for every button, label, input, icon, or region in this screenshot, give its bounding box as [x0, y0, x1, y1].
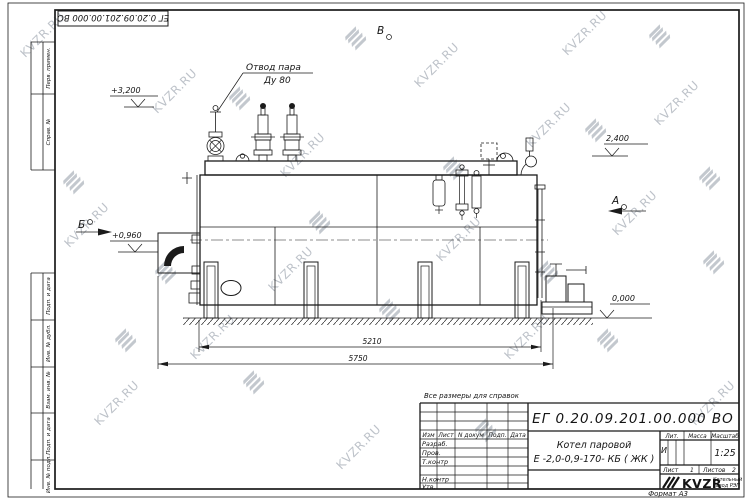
margin-label-sprav-no: Справ. №: [46, 118, 52, 145]
elevation-3200: +3,200: [111, 86, 141, 95]
col-data: Дата: [509, 432, 526, 439]
phantom-fitting: [481, 143, 497, 175]
kvzr-logo: [663, 477, 679, 488]
col-list: Лист: [437, 432, 454, 439]
elevation-0960: +0,960: [112, 231, 142, 240]
format-label: Формат А3: [648, 490, 688, 498]
margin-label-inv-podl: Инв. № подл.: [46, 455, 52, 493]
titleblock-doc-number: ЕГ 0.20.09.201.00.000 ВО: [532, 411, 734, 427]
steam-outlet-label-line1: Отвод пара: [246, 63, 301, 73]
lit-label: Лит.: [664, 434, 679, 440]
elevation-2400: 2,400: [606, 134, 629, 143]
margin-label-inv-dubl: Инв. № дубл.: [46, 324, 52, 362]
dim-5210: 5210: [362, 337, 381, 346]
col-ndokum: N докум: [458, 432, 484, 439]
safety-valve-2: [280, 103, 304, 161]
list-label: Лист: [662, 467, 679, 474]
feed-pump: [542, 264, 592, 314]
company-line2: завод РЭП: [713, 483, 740, 489]
col-izm: Изм: [422, 432, 435, 439]
view-marker-a: А: [611, 195, 619, 207]
dim-5750: 5750: [348, 354, 367, 363]
dome-fitting: [236, 154, 249, 161]
view-marker-v: В: [377, 25, 384, 37]
margin-label-vzam-inv: Взам. инв. №: [46, 371, 52, 409]
boiler-drawing: [158, 103, 652, 325]
water-level-gauge: [456, 165, 481, 220]
hatch-dome: [497, 153, 513, 161]
row-prov: Пров.: [422, 449, 441, 457]
left-margin-labels: Перв. примен. Справ. № Подп. и дата Инв.…: [46, 47, 52, 493]
safety-valve-1: [251, 103, 275, 161]
row-utv: Утв.: [422, 483, 436, 491]
col-podp: Подп.: [488, 432, 506, 439]
front-fittings: [189, 235, 200, 303]
listov-value: 2: [732, 467, 736, 474]
reference-note: Все размеры для справок: [424, 392, 520, 400]
scale-value: 1:25: [714, 448, 735, 459]
product-name-line1: Котел паровой: [557, 440, 632, 451]
boiler-body: [182, 161, 548, 305]
lit-value: И: [661, 446, 667, 455]
top-doc-number-stamp: ЕГ 0.20.09.201.00.000 ВО: [57, 11, 169, 26]
row-tkontr: Т.контр: [422, 458, 448, 466]
drawing-canvas: Перв. примен. Справ. № Подп. и дата Инв.…: [0, 0, 750, 500]
view-marker-b: Б: [78, 219, 85, 231]
steam-outlet-label-line2: Ду 80: [263, 76, 291, 86]
manhole: [221, 281, 241, 296]
burner: [158, 233, 200, 273]
margin-label-podp-data-1: Подп. и дата: [46, 277, 52, 315]
drawing-sheet: KVZR.RU KVZR.RU KVZR.RU KVZR.RU KVZR.RU …: [0, 0, 750, 500]
elevation-0000: 0,000: [612, 294, 635, 303]
margin-label-perv-primen: Перв. примен.: [46, 47, 52, 89]
list-value: 1: [690, 467, 694, 474]
top-doc-number: ЕГ 0.20.09.201.00.000 ВО: [57, 12, 169, 22]
view-markers: Б А В: [76, 25, 646, 236]
gauge-cylinder: [433, 175, 445, 214]
gauge-siphon-loop: [521, 138, 537, 175]
title-block: ЕГ 0.20.09.201.00.000 ВО Котел паровой Е…: [420, 403, 743, 498]
masshtab-label: Масштаб: [711, 434, 739, 440]
steam-valve: [207, 106, 224, 162]
row-razrab: Разраб.: [422, 440, 448, 448]
ground: [183, 318, 652, 325]
product-name-line2: Е -2,0-0,9-170- КБ ( ЖК ): [534, 454, 655, 465]
massa-label: Масса: [688, 434, 707, 440]
listov-label: Листов: [702, 467, 726, 474]
margin-label-podp-data-2: Подп. и дата: [46, 417, 52, 455]
